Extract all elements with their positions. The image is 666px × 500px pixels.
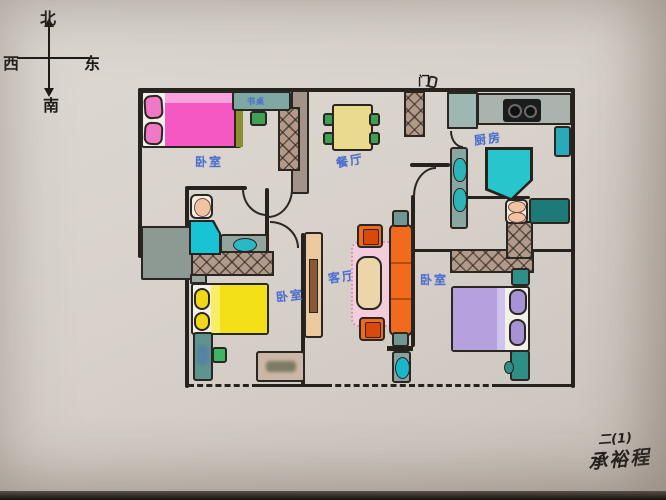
cabinet-basin: [453, 188, 467, 212]
stove-burner: [524, 105, 537, 118]
end-table-top: [392, 210, 409, 227]
bed1-pillow: [143, 122, 163, 146]
end-table-bottom: [392, 332, 409, 347]
door-arc-bedroom1: [242, 189, 267, 216]
photo-bottom-edge: [0, 491, 666, 500]
wall-bottom-solid-right: [496, 384, 575, 387]
toilet-1-seat: [194, 198, 211, 217]
bed2-blanket-stripe: [211, 285, 220, 333]
bed3-pillow: [509, 289, 527, 315]
dining-table: [332, 104, 373, 151]
bedroom2-label: 卧室: [275, 286, 305, 306]
signature-name: 承裕程: [587, 442, 652, 474]
wall-right: [571, 88, 575, 388]
door-arc-kitchen: [450, 131, 463, 148]
hatch-entry-column: [404, 91, 425, 137]
toilet-2-lid: [508, 212, 526, 223]
bedroom3-label: 卧室: [420, 271, 448, 288]
dining-chair: [323, 113, 334, 126]
kitchen-wall-cabinet: [554, 126, 571, 157]
washing-machine-door: [395, 357, 410, 379]
floor-plan-photo: 北 南 西 东 书桌 卧室: [0, 0, 666, 500]
wall-bottom-dashed-mid: [326, 384, 498, 387]
wall-bottom-dashed-left: [188, 384, 258, 387]
wall-hall-top: [410, 163, 450, 167]
compass-south-label: 南: [43, 92, 59, 116]
wardrobe-left-outer: [141, 226, 193, 280]
entry-door-label: 门: [418, 72, 430, 89]
wall-left-lower: [185, 188, 189, 388]
compass-horizontal-line: [17, 57, 89, 59]
bedside-green-box: [212, 347, 227, 363]
fridge: [447, 92, 478, 129]
bed1-blanket-stripe: [165, 93, 236, 103]
compass-west-label: 西: [3, 50, 19, 74]
hatch-column-bedroom1: [278, 107, 300, 171]
desk-chair: [250, 111, 267, 126]
dining-chair: [369, 132, 380, 145]
desk-label: 书桌: [247, 96, 265, 107]
wardrobe-scribble: [197, 345, 209, 365]
nightstand-knob: [504, 361, 514, 374]
armchair-top-seat: [363, 229, 379, 245]
sofa-cushion-line: [391, 262, 411, 264]
bed1-pillow: [143, 94, 164, 119]
hatch-bath2-right: [506, 221, 533, 259]
wall-bedroom1-bottom: [185, 186, 247, 190]
sofa-cushion-line: [391, 298, 411, 300]
illegible-stamp: [266, 361, 296, 372]
nightstand-top: [511, 268, 530, 286]
tv: [309, 259, 318, 313]
stove-burner: [508, 104, 522, 118]
wall-bottom-solid-mid: [255, 384, 328, 387]
dining-label: 餐厅: [335, 150, 366, 172]
dining-chair: [369, 113, 380, 126]
bed2-pillow: [194, 312, 210, 331]
dining-chair: [323, 132, 334, 145]
kitchen-sink: [488, 150, 530, 198]
door-arc-bathroom2-hall: [413, 167, 436, 196]
kitchen-label: 厨房: [473, 128, 503, 149]
bed2-pillow: [194, 288, 210, 310]
bed3-pillow: [509, 319, 526, 346]
bath2-counter: [529, 198, 570, 224]
compass-east-label: 东: [84, 50, 100, 74]
compass-north-label: 北: [40, 5, 56, 29]
door-arc-bedroom2: [270, 221, 299, 248]
cabinet-basin: [453, 158, 467, 182]
door-arc-corridor: [268, 189, 293, 218]
sofa-main: [389, 224, 413, 336]
bed3-blanket-stripe: [497, 288, 505, 350]
armchair-bottom-seat: [365, 322, 381, 338]
bedroom1-label: 卧室: [195, 153, 223, 170]
shower: [191, 222, 219, 253]
sink-1: [233, 238, 257, 252]
coffee-table: [356, 256, 382, 310]
